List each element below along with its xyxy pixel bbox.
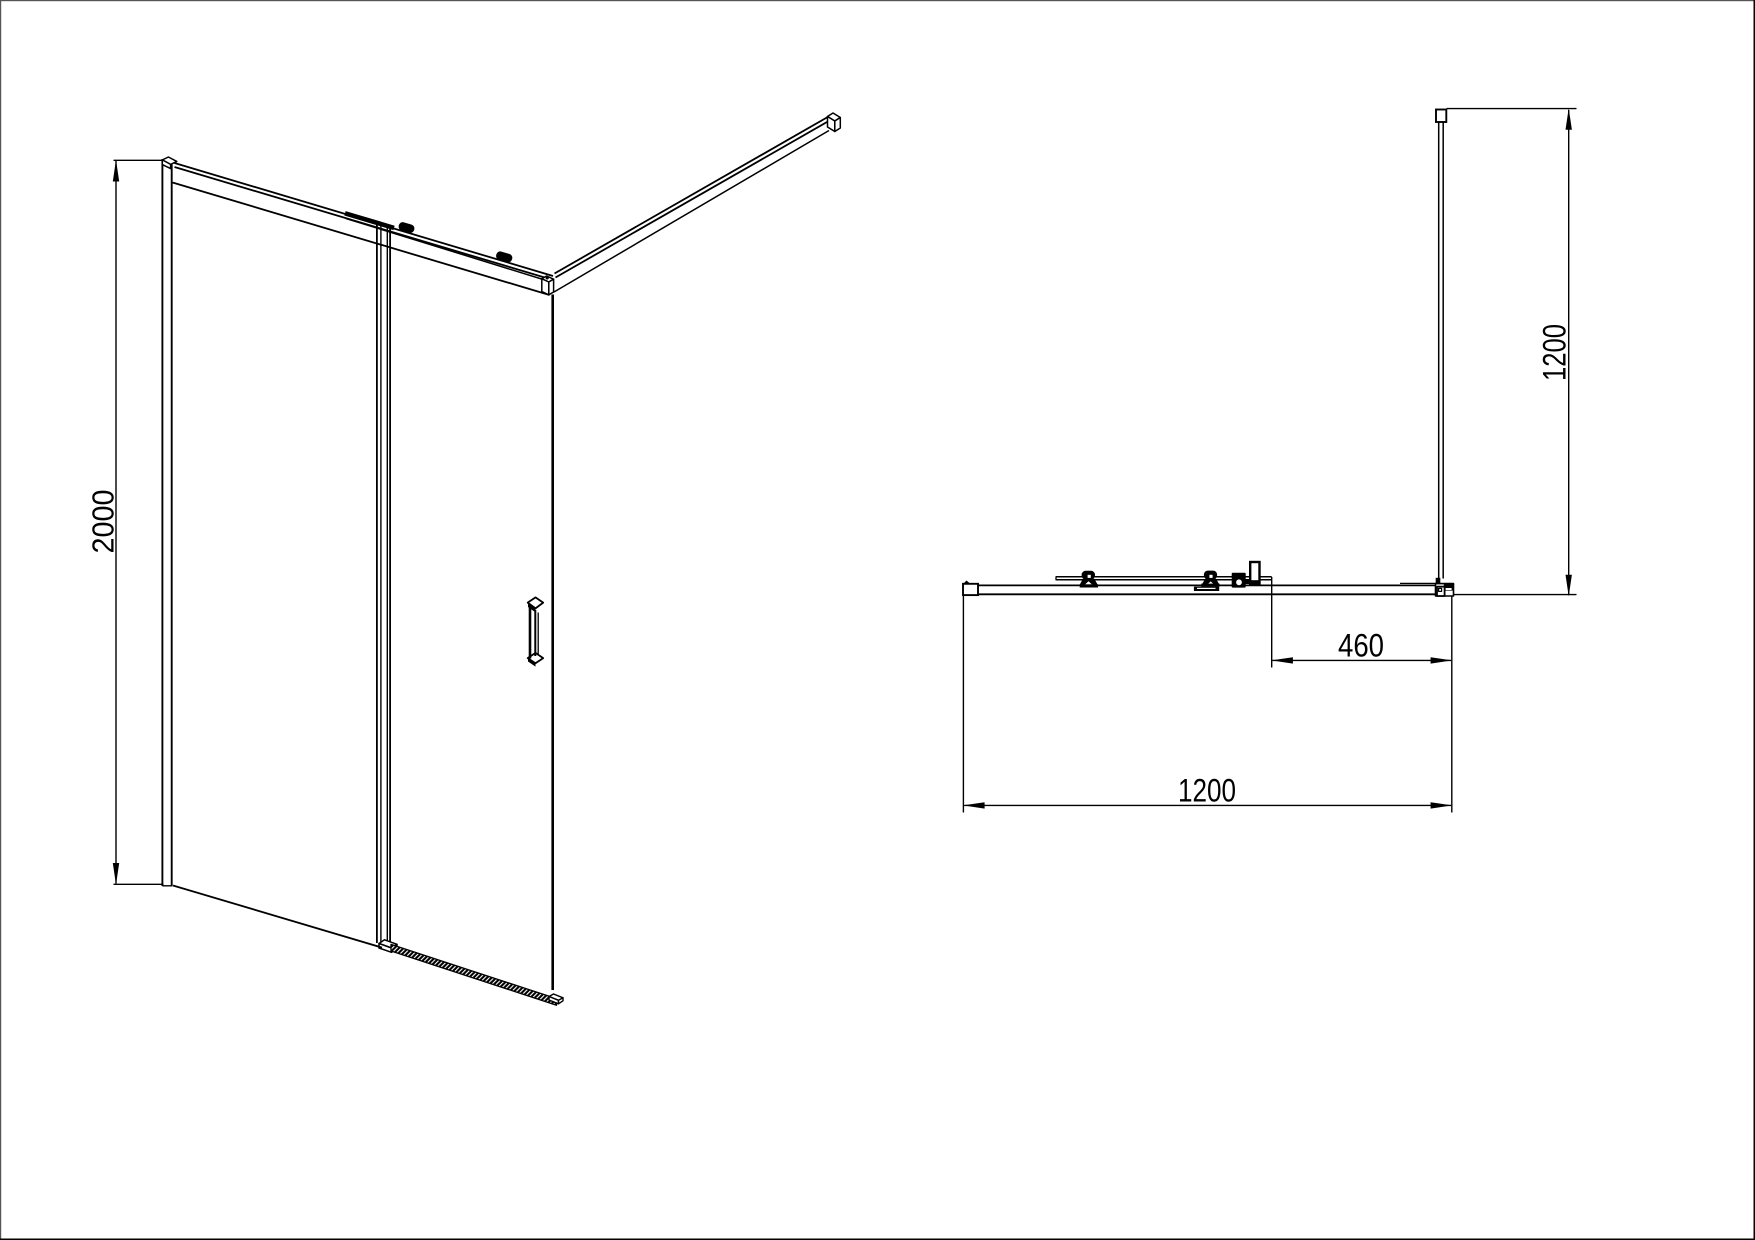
- svg-text:1200: 1200: [1537, 324, 1573, 381]
- svg-text:1200: 1200: [1178, 773, 1236, 809]
- svg-text:2000: 2000: [86, 490, 121, 554]
- svg-text:460: 460: [1338, 628, 1384, 664]
